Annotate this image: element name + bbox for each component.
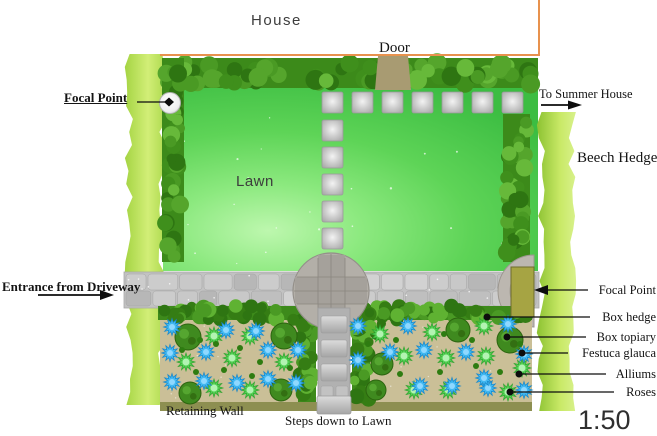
steps-label: Steps down to Lawn [285,414,392,428]
lawn-label: Lawn [236,174,274,191]
house-wall-line [160,0,540,56]
house-label: House [251,13,302,30]
door-label: Door [379,40,410,57]
retaining-wall-label: Retaining Wall [166,404,244,418]
garden-plan: House Door Focal Point To Summer House B… [0,0,657,436]
steps-path [317,308,351,414]
legend-box-topiary-label: Box topiary [597,330,656,345]
legend-alliums-label: Alliums [616,367,656,382]
to-summer-house-label: To Summer House [539,88,633,102]
beech-hedge-label: Beech Hedge [577,150,657,167]
plan-graphic [0,0,657,436]
scale-label: 1:50 [578,406,631,436]
legend-focal-point-label: Focal Point [599,283,656,298]
boundary-hedge-right [498,114,534,262]
entrance-label: Entrance from Driveway [2,280,140,294]
legend-roses-label: Roses [626,385,656,400]
beech-hedge-right [537,112,576,411]
focal-point-left-label: Focal Point [64,91,127,105]
lawn-area [163,88,538,271]
legend-box-hedge-label: Box hedge [602,310,656,325]
legend-festuca-glauca-label: Festuca glauca [582,346,656,361]
focal-structure [511,267,534,317]
boundary-hedge-top [160,53,540,93]
door-opening [375,56,411,90]
